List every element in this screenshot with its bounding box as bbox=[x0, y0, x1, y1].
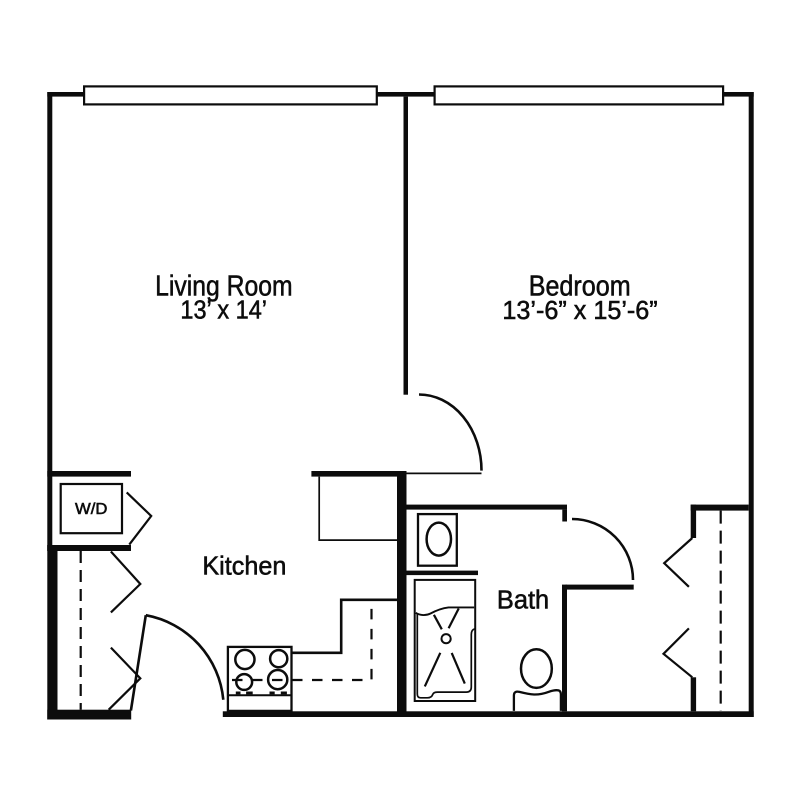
svg-text:Kitchen: Kitchen bbox=[202, 550, 286, 580]
svg-text:W/D: W/D bbox=[75, 501, 107, 518]
svg-text:Bath: Bath bbox=[497, 587, 549, 615]
svg-text:13’ x 14’: 13’ x 14’ bbox=[180, 296, 267, 324]
svg-text:13’-6” x 15’-6”: 13’-6” x 15’-6” bbox=[502, 297, 657, 325]
